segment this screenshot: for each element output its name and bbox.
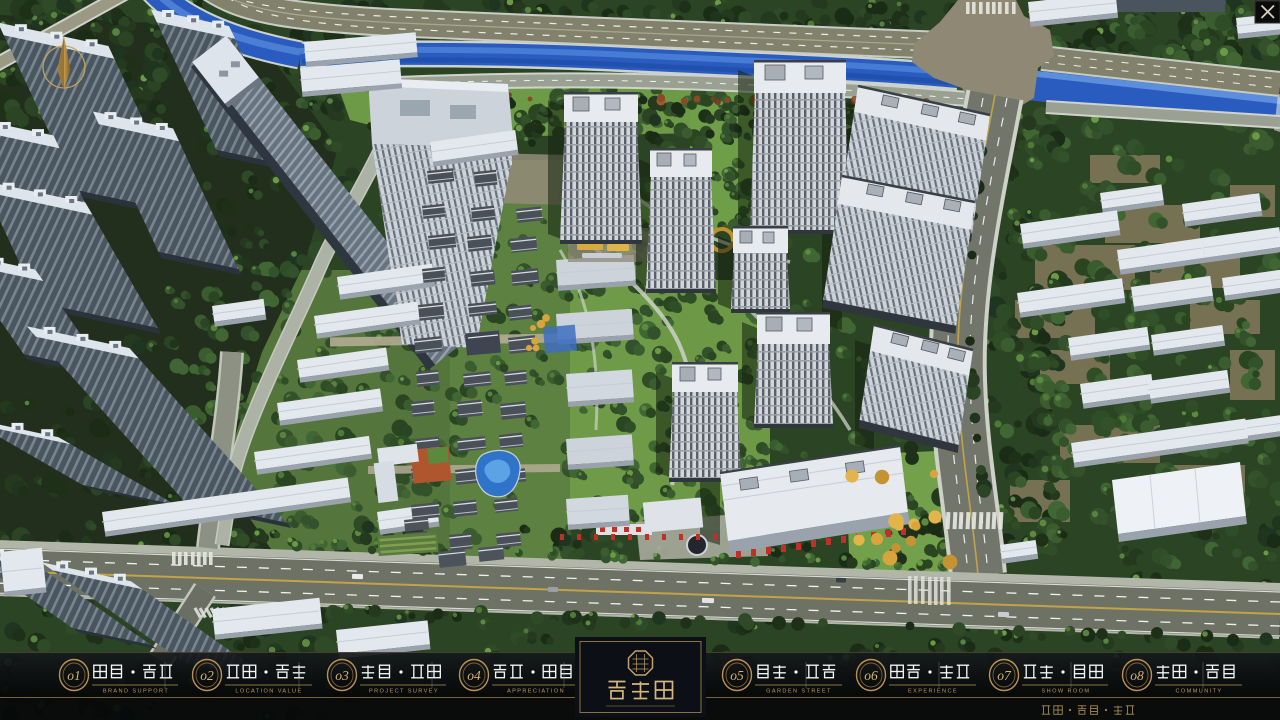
svg-text:SHOW ROOM: SHOW ROOM (1042, 689, 1091, 695)
svg-text:o5: o5 (730, 668, 744, 683)
svg-text:LOCATION VALUE: LOCATION VALUE (235, 689, 302, 695)
svg-text:o6: o6 (864, 668, 878, 683)
svg-text:o7: o7 (997, 668, 1012, 683)
svg-text:COMMUNITY: COMMUNITY (1175, 689, 1222, 695)
svg-text:o3: o3 (335, 668, 349, 683)
svg-text:BRAND SUPPORT: BRAND SUPPORT (103, 689, 169, 695)
svg-text:APPRECIATION: APPRECIATION (507, 689, 565, 695)
svg-text:o8: o8 (1130, 668, 1144, 683)
svg-text:o4: o4 (467, 668, 481, 683)
svg-text:o2: o2 (200, 668, 214, 683)
svg-text:GARDEN STREET: GARDEN STREET (766, 689, 832, 695)
svg-text:EXPERIENCE: EXPERIENCE (908, 689, 958, 695)
svg-text:PROJECT SURVEY: PROJECT SURVEY (369, 689, 439, 695)
svg-text:o1: o1 (67, 668, 81, 683)
